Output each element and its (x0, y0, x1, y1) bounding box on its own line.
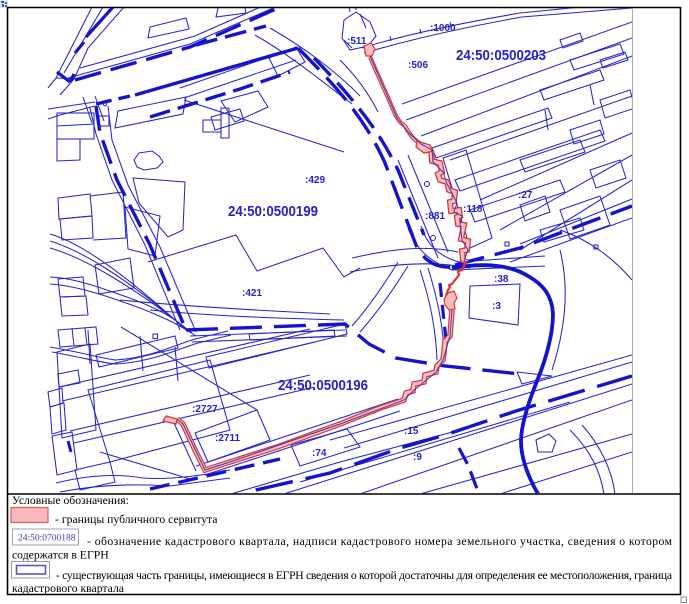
svg-text::2727: :2727 (192, 404, 218, 415)
svg-text:- существующая часть границы,: - существующая часть границы, имеющиеся … (56, 569, 673, 582)
svg-text::38: :38 (494, 274, 509, 285)
svg-text:24:50:0500199: 24:50:0500199 (228, 204, 318, 220)
svg-text::511: :511 (347, 36, 367, 47)
svg-text::421: :421 (242, 288, 262, 299)
svg-text:кадастрового квартала: кадастрового квартала (12, 582, 125, 595)
svg-text:24:50:0700188: 24:50:0700188 (18, 534, 76, 544)
svg-text:Условные обозначения:: Условные обозначения: (12, 494, 129, 507)
svg-text::74: :74 (312, 448, 327, 459)
svg-text::27: :27 (518, 190, 533, 201)
svg-text::3: :3 (492, 301, 501, 312)
svg-text::2711: :2711 (215, 433, 240, 444)
svg-text::506: :506 (408, 60, 428, 71)
svg-text::118: :118 (463, 204, 483, 215)
svg-text:- границы публичного сервитута: - границы публичного сервитута (55, 513, 218, 526)
svg-text:содержатся в ЕГРН: содержатся в ЕГРН (12, 549, 109, 562)
svg-text::9: :9 (413, 452, 422, 463)
svg-text::1000: :1000 (430, 23, 456, 34)
svg-text::15: :15 (404, 426, 419, 437)
svg-text::429: :429 (305, 175, 325, 186)
svg-text::881: :881 (425, 211, 445, 222)
svg-text:24:50:0500203: 24:50:0500203 (456, 48, 546, 64)
svg-text:24:50:0500196: 24:50:0500196 (278, 378, 368, 394)
svg-text:- обозначение кадастрового: - обозначение кадастрового квартала, над… (87, 535, 673, 548)
